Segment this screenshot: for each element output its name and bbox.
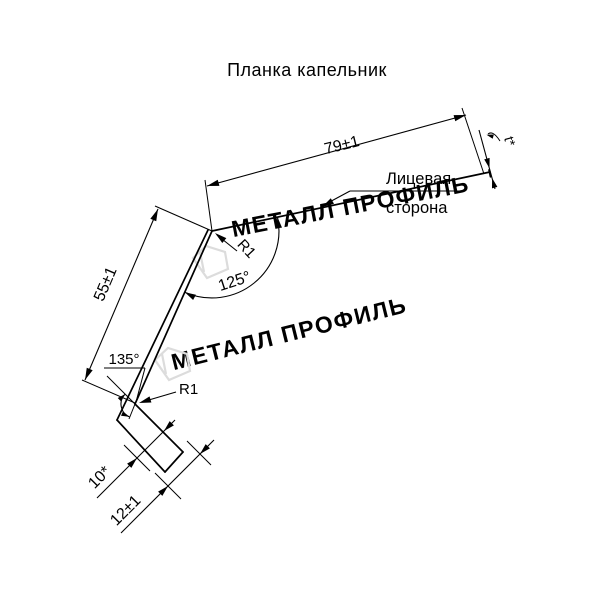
leader-hook: [488, 133, 500, 141]
profile-hem-outer-line: [135, 404, 183, 452]
arrowhead: [150, 208, 161, 222]
arrowhead: [138, 396, 151, 406]
arrowhead: [82, 368, 93, 382]
extension-line: [462, 108, 484, 174]
extension-line: [205, 180, 212, 231]
web-extension-line: [129, 404, 135, 419]
dim-10-label: 10*: [85, 463, 114, 492]
profile-hem-end-cap: [165, 452, 183, 472]
watermark-text-lower: МЕТАЛЛ ПРОФИЛЬ: [169, 291, 410, 375]
dim-55-label: 55±1: [91, 264, 121, 303]
technical-drawing: МЕТАЛЛ ПРОФИЛЬ МЕТАЛЛ ПРОФИЛЬ Планка кап…: [0, 0, 600, 600]
dim-79-label: 79±1: [323, 133, 362, 158]
face-side-label-line2: сторона: [386, 199, 448, 217]
face-side-label-line1: Лицевая: [386, 170, 451, 188]
dimension-thickness: t*: [479, 130, 519, 189]
radius-bottom-callout: R1: [138, 381, 198, 406]
angle-135-label: 135°: [108, 351, 139, 368]
radius-bottom-label: R1: [179, 381, 198, 398]
arrowhead: [489, 177, 497, 188]
arrowhead: [121, 411, 130, 419]
dimension-12: 12±1: [107, 440, 214, 533]
arrowhead: [206, 180, 219, 189]
thickness-label: t*: [501, 135, 519, 149]
extension-tick: [187, 441, 211, 465]
dimension-55: 55±1: [82, 206, 212, 403]
page-title: Планка капельник: [227, 60, 387, 80]
extension-line: [155, 206, 212, 231]
drawing-page: МЕТАЛЛ ПРОФИЛЬ МЕТАЛЛ ПРОФИЛЬ Планка кап…: [0, 0, 600, 600]
arrowhead: [484, 158, 492, 169]
extension-line: [82, 380, 135, 403]
dim-12-label: 12±1: [107, 492, 144, 529]
